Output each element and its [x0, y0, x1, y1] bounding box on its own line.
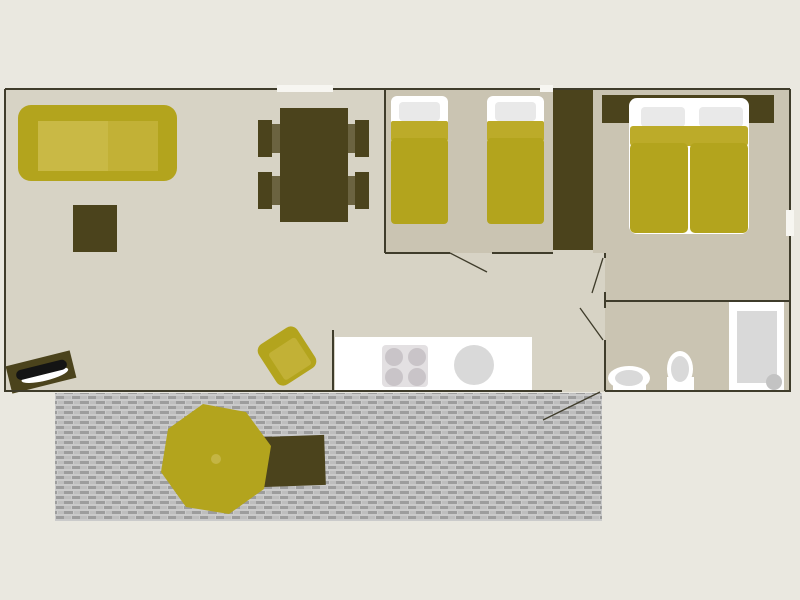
single-bed-1: [391, 96, 448, 224]
duvet: [487, 138, 544, 224]
floor-plan: [0, 0, 800, 600]
coffee-table: [73, 205, 117, 252]
burner: [385, 348, 403, 366]
garden-table: [259, 435, 326, 487]
duvet: [391, 138, 448, 224]
dining-table: [280, 108, 348, 222]
dining-chair: [355, 120, 369, 157]
duvet-left: [630, 143, 688, 233]
duvet-right: [690, 143, 748, 233]
dining-chair: [355, 172, 369, 209]
pillow: [495, 102, 536, 121]
floor-plan-canvas: [0, 0, 800, 600]
dining-chair: [258, 120, 272, 157]
window-right: [786, 210, 794, 236]
shower-drain: [766, 374, 782, 390]
kitchen: [335, 337, 532, 390]
washbasin: [608, 366, 650, 391]
terrace: [55, 393, 602, 521]
terrace-decking: [55, 393, 602, 521]
dining-chair: [258, 172, 272, 209]
shower-tray: [737, 311, 777, 383]
pillow: [399, 102, 440, 121]
burner: [408, 348, 426, 366]
pillow-right: [699, 107, 743, 127]
toilet-bowl: [671, 356, 689, 382]
double-bed: [629, 98, 749, 234]
burner: [408, 368, 426, 386]
sofa-cushion-left: [38, 121, 108, 171]
kitchen-sink: [454, 345, 494, 385]
shower: [729, 302, 784, 391]
washbasin-bowl: [615, 370, 643, 386]
parasol-pole: [211, 454, 221, 464]
pillow-left: [641, 107, 685, 127]
single-bed-2: [487, 96, 544, 224]
sofa: [18, 105, 177, 181]
sofa-cushion-right: [108, 121, 158, 171]
kitchen-counter: [335, 337, 532, 390]
double-bedroom-floor-lower: [605, 253, 790, 301]
burner: [385, 368, 403, 386]
window-top-small: [540, 85, 553, 92]
wardrobe: [553, 90, 593, 250]
window-top: [277, 85, 333, 92]
